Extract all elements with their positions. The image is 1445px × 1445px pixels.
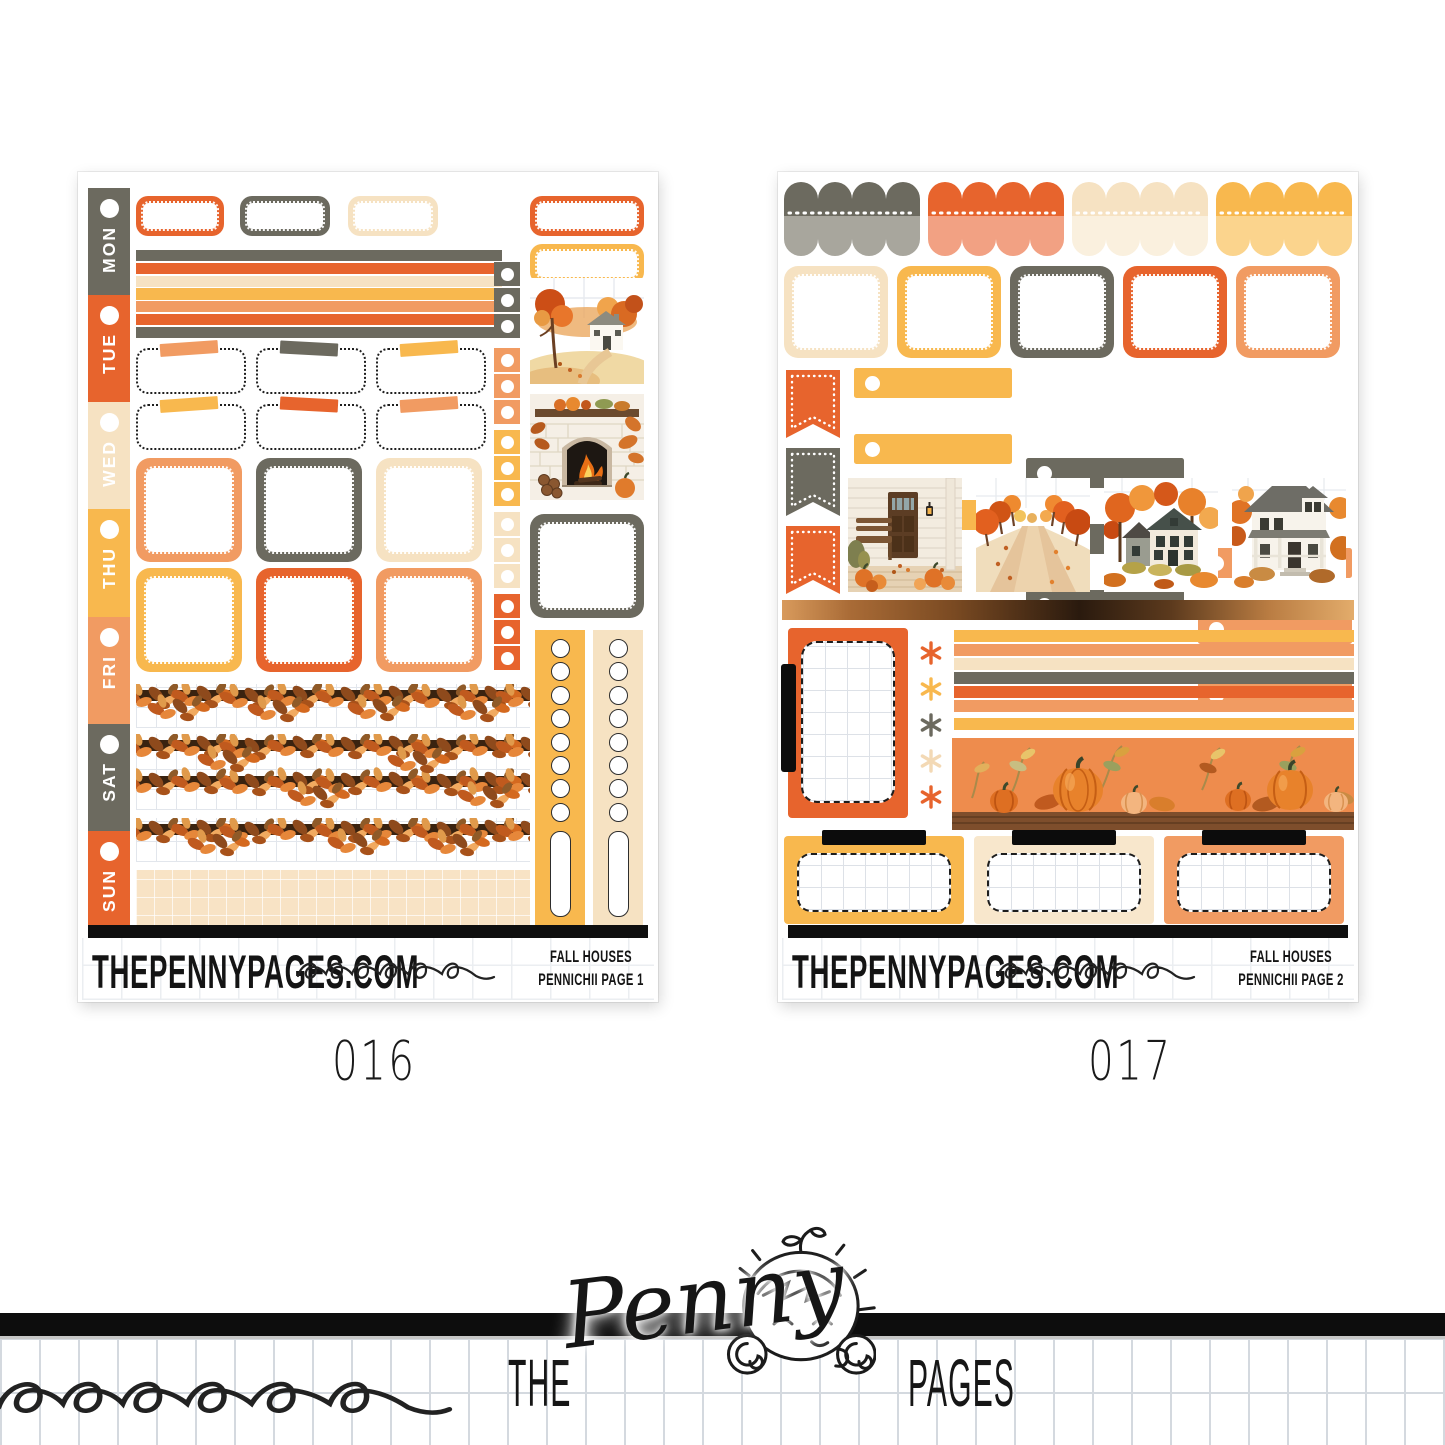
pennant-flag-sticker [784, 446, 842, 518]
dashed-label-box [256, 404, 366, 450]
washi-tape-piece [160, 340, 219, 357]
clipboard-sticker [1164, 836, 1344, 924]
asterisk-icon [918, 640, 944, 666]
loop-squiggle-icon [996, 954, 1196, 988]
day-label: MON [99, 226, 120, 273]
leaf-garland-washi [136, 684, 530, 728]
fall-house-image [1104, 478, 1218, 592]
pill-label-sticker [348, 196, 438, 236]
product-photo: MON TUE WED THU FRI SAT SUN [0, 0, 1445, 1445]
clip-icon [781, 664, 796, 772]
washi-tape-piece [280, 396, 339, 412]
clipboard-grid-area [797, 853, 951, 912]
checklist-strip [535, 630, 585, 936]
clipboard-sticker [784, 836, 964, 924]
scallop-washi-sticker [1072, 182, 1208, 256]
checklist-bar [608, 831, 629, 917]
pill-label-sticker [240, 196, 330, 236]
kit-name: FALL HOUSES [528, 946, 653, 969]
kit-page: PENNICHII PAGE 2 [1228, 969, 1353, 992]
scallop-washi-sticker [1216, 182, 1352, 256]
checkbox-strip-gray [494, 262, 520, 338]
day-tab-fri: FRI [88, 617, 130, 724]
pill-label-sticker [136, 196, 224, 236]
loop-squiggle-icon [0, 1366, 454, 1430]
kit-page: PENNICHII PAGE 1 [528, 969, 653, 992]
washi-tape-piece [280, 340, 339, 356]
full-box-sticker [376, 568, 482, 672]
footer-kit-text: FALL HOUSES PENNICHII PAGE 2 [1228, 946, 1353, 992]
day-tab-sat: SAT [88, 724, 130, 831]
punch-dot [100, 628, 119, 647]
asterisk-icon [918, 748, 944, 774]
notepad-grid-area [801, 641, 895, 803]
pumpkin-banner-image [952, 738, 1354, 830]
full-box-sticker [256, 458, 362, 562]
day-label: SAT [99, 762, 120, 802]
sheet-code-017: 017 [1088, 1030, 1172, 1093]
day-label: TUE [99, 333, 120, 374]
frame-box-sticker [1123, 266, 1227, 358]
checkbox-strip-cream [494, 512, 520, 588]
clipboard-grid-area [987, 853, 1141, 912]
date-cover-strip: MON TUE WED THU FRI SAT SUN [88, 188, 130, 938]
asterisk-icon [918, 784, 944, 810]
asterisk-icon [918, 676, 944, 702]
footer-divider-bar [788, 925, 1348, 938]
full-box-sticker [136, 458, 242, 562]
brand-logo: THE Penny PAGES [500, 1215, 1040, 1445]
footer-kit-text: FALL HOUSES PENNICHII PAGE 1 [528, 946, 653, 992]
washi-tape-piece [400, 340, 459, 357]
clip-icon [822, 830, 926, 845]
pill-label-sticker [530, 196, 644, 236]
logo-word-pages: PAGES [908, 1345, 1015, 1422]
fall-scene-image [530, 278, 644, 384]
hole-bar-sticker [854, 368, 1012, 398]
dashed-label-box [136, 404, 246, 450]
asterisk-icon [918, 712, 944, 738]
day-label: FRI [99, 655, 120, 689]
loop-squiggle-icon [296, 954, 496, 988]
pennant-flag-sticker [784, 524, 842, 596]
day-label: WED [99, 440, 120, 487]
sticker-sheet-016: MON TUE WED THU FRI SAT SUN [78, 172, 658, 1002]
washi-stripe-stack [954, 630, 1354, 730]
punch-dot [100, 520, 119, 539]
clipboard-grid-area [1177, 853, 1331, 912]
dashed-label-box [376, 404, 486, 450]
clipboard-sticker [974, 836, 1154, 924]
washi-tape-piece [400, 396, 459, 413]
frame-box-sticker [784, 266, 888, 358]
clip-icon [1202, 830, 1306, 845]
dashed-label-box [256, 348, 366, 394]
full-box-sticker [256, 568, 362, 672]
day-tab-tue: TUE [88, 295, 130, 402]
leaf-garland-washi [136, 818, 530, 862]
day-tab-wed: WED [88, 402, 130, 509]
checkbox-strip-salmon [494, 348, 520, 424]
punch-dot [100, 413, 119, 432]
tree-road-image [976, 478, 1090, 592]
frame-box-sticker [897, 266, 1001, 358]
dashed-label-box [136, 348, 246, 394]
punch-dot [100, 306, 119, 325]
scallop-washi-sticker [928, 182, 1064, 256]
porch-image [848, 478, 962, 592]
day-tab-thu: THU [88, 509, 130, 616]
dashed-label-box [376, 348, 486, 394]
leaf-garland-washi [136, 734, 530, 810]
scallop-washi-sticker [784, 182, 920, 256]
pennant-flag-sticker [784, 368, 842, 440]
copper-foil-washi [782, 600, 1354, 620]
sheet-code-016: 016 [332, 1030, 416, 1093]
full-box-sticker [136, 568, 242, 672]
footer-divider-bar [88, 925, 648, 938]
day-tab-sun: SUN [88, 831, 130, 938]
punch-dot [100, 842, 119, 861]
logo-word-the: THE [508, 1345, 571, 1422]
checklist-bar [550, 831, 571, 917]
hole-bar-sticker [854, 434, 1012, 464]
washi-stripe-stack [136, 250, 502, 338]
punch-dot [100, 199, 119, 218]
fireplace-image [530, 394, 644, 500]
day-label: THU [99, 547, 120, 589]
victorian-house-image [1232, 478, 1346, 592]
day-label: SUN [99, 869, 120, 912]
washi-tape-piece [160, 396, 219, 413]
full-box-sticker [530, 514, 644, 618]
sticker-sheet-017: THEPENNYPAGES.COM FALL HOUSES PENNICHII … [778, 172, 1358, 1002]
full-box-sticker [376, 458, 482, 562]
frame-box-sticker [1236, 266, 1340, 358]
notepad-sticker [788, 628, 908, 818]
day-tab-mon: MON [88, 188, 130, 295]
checklist-strip [593, 630, 643, 936]
kit-name: FALL HOUSES [1228, 946, 1353, 969]
checkbox-strip-yellow [494, 430, 520, 506]
checkbox-strip-orange [494, 594, 520, 670]
frame-box-sticker [1010, 266, 1114, 358]
punch-dot [100, 735, 119, 754]
clip-icon [1012, 830, 1116, 845]
